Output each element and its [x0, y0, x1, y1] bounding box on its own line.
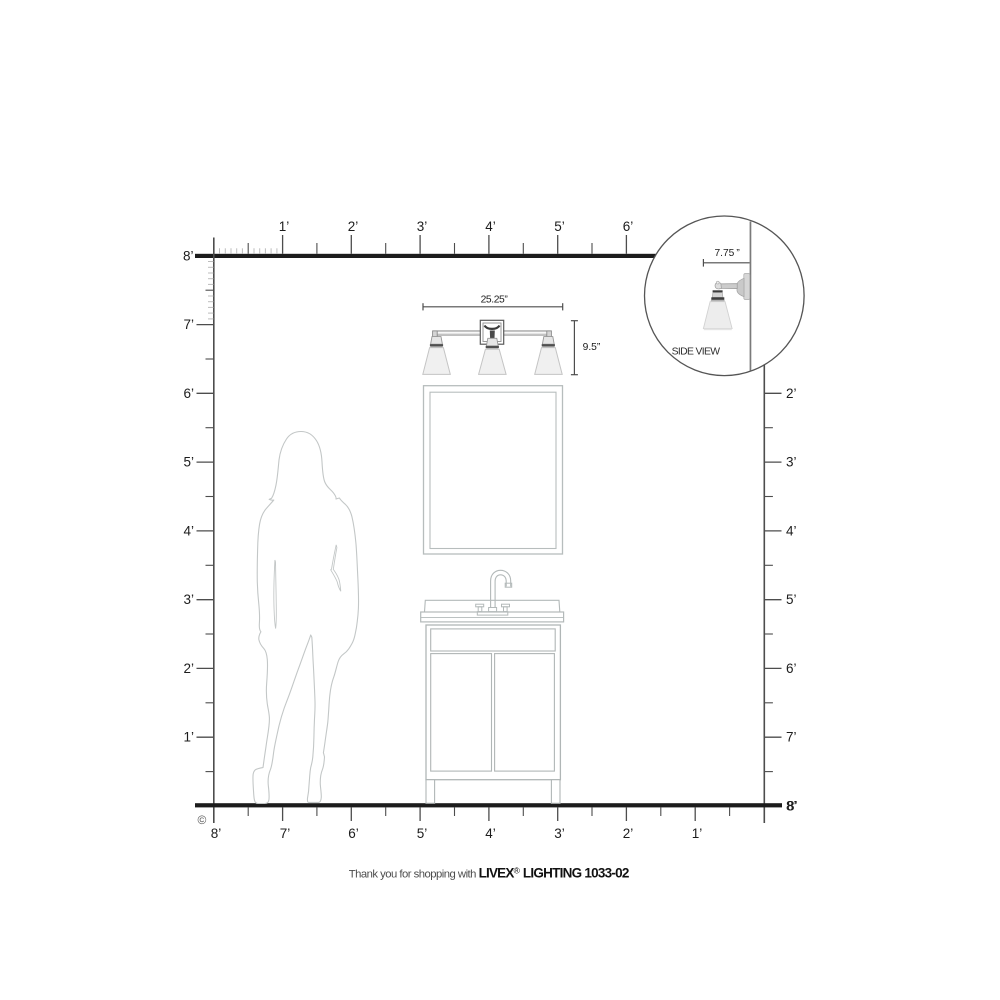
svg-text:SIDE VIEW: SIDE VIEW: [672, 347, 721, 358]
svg-text:4’: 4’: [183, 523, 194, 538]
svg-text:3’: 3’: [183, 592, 194, 607]
svg-text:25.25”: 25.25”: [481, 295, 509, 306]
svg-text:6’: 6’: [786, 661, 797, 676]
svg-text:9.5”: 9.5”: [583, 342, 601, 353]
svg-text:4’: 4’: [485, 219, 496, 234]
svg-text:5’: 5’: [786, 592, 797, 607]
svg-text:©: ©: [198, 813, 207, 827]
svg-text:6’: 6’: [183, 386, 194, 401]
svg-text:4’: 4’: [786, 523, 797, 538]
svg-text:2’: 2’: [348, 219, 359, 234]
svg-text:6’: 6’: [623, 219, 634, 234]
svg-text:1’: 1’: [279, 219, 290, 234]
svg-text:3’: 3’: [417, 219, 428, 234]
svg-text:7’: 7’: [183, 317, 194, 332]
svg-text:7’: 7’: [786, 730, 797, 745]
svg-text:6’: 6’: [348, 826, 359, 841]
svg-text:7’: 7’: [280, 826, 291, 841]
svg-text:3’: 3’: [554, 826, 565, 841]
svg-text:2’: 2’: [786, 386, 797, 401]
svg-text:5’: 5’: [417, 826, 428, 841]
svg-text:3’: 3’: [786, 455, 797, 470]
svg-text:2’: 2’: [623, 826, 634, 841]
svg-text:1’: 1’: [183, 730, 194, 745]
svg-text:4’: 4’: [485, 826, 496, 841]
svg-text:Thank you for shopping with LI: Thank you for shopping with LIVEX® LIGHT…: [349, 865, 629, 881]
svg-text:8’: 8’: [787, 799, 798, 814]
svg-text:8’: 8’: [211, 826, 222, 841]
svg-text:5’: 5’: [183, 455, 194, 470]
svg-text:2’: 2’: [183, 661, 194, 676]
svg-text:8’: 8’: [183, 249, 194, 264]
svg-text:7.75 ”: 7.75 ”: [715, 248, 741, 259]
svg-text:1’: 1’: [692, 826, 703, 841]
svg-text:5’: 5’: [554, 219, 565, 234]
